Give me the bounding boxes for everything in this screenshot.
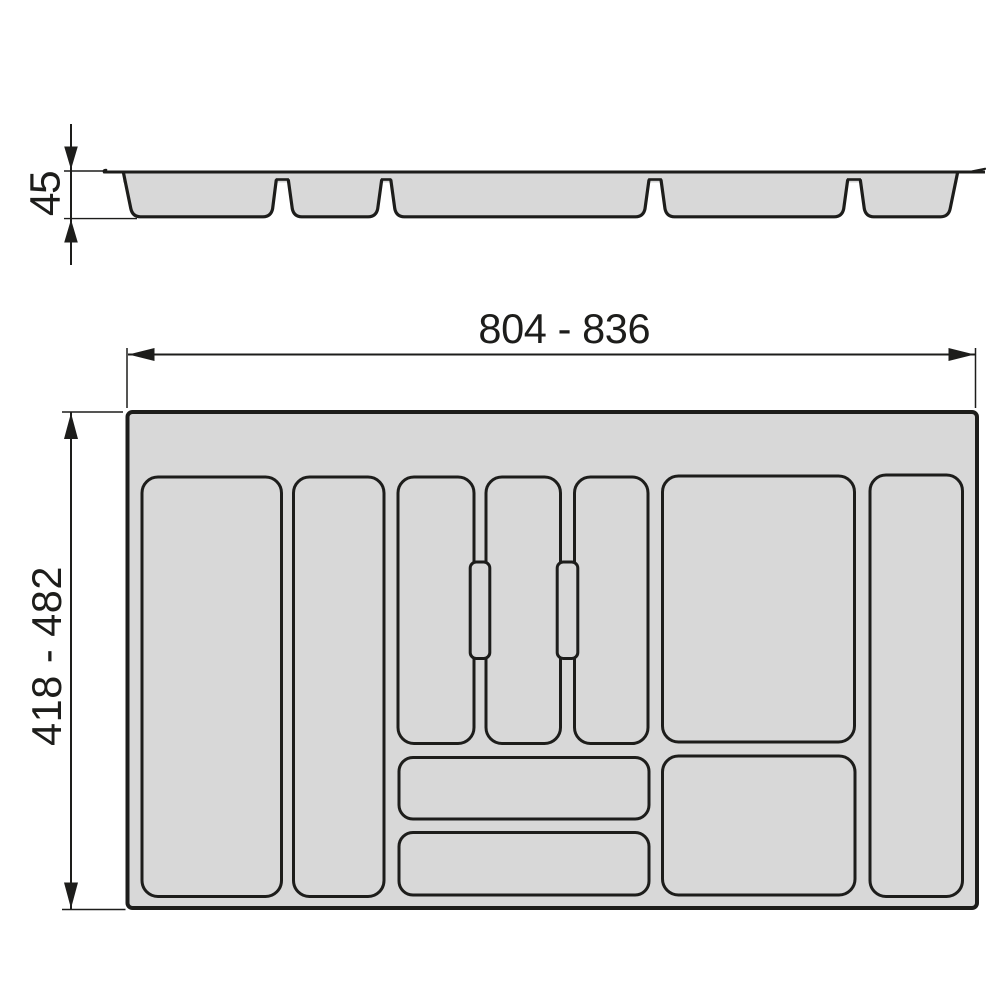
svg-text:804 - 836: 804 - 836 [478,305,650,352]
svg-text:418 - 482: 418 - 482 [23,566,70,746]
svg-text:45: 45 [22,172,69,216]
